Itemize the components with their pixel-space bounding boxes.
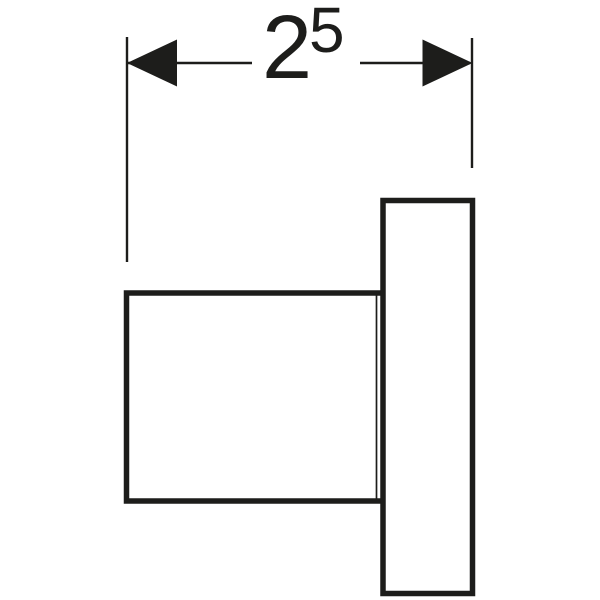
dimension-drawing-svg: 2 5: [0, 0, 600, 600]
dimension-arrow-left-icon: [127, 40, 177, 87]
dimension-arrow-right-icon: [423, 40, 473, 87]
dimension-superscript-text: 5: [309, 0, 345, 66]
part-outline: [127, 201, 473, 594]
technical-drawing-area: 2 5: [0, 0, 600, 600]
dimension-value-text: 2: [262, 0, 312, 98]
part-flange-outline: [383, 201, 473, 594]
part-body-outline: [127, 293, 385, 501]
